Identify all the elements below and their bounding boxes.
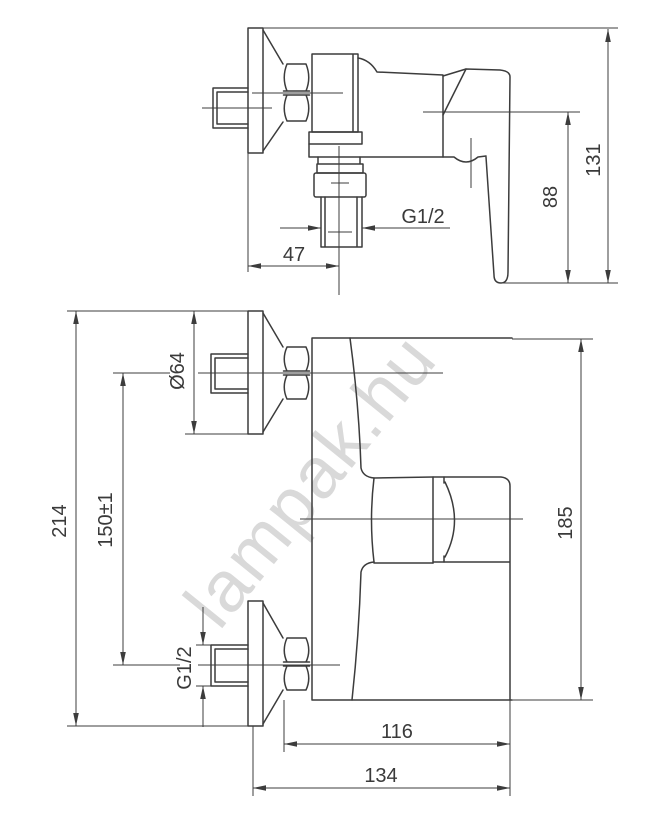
lower-escutcheon-cone bbox=[263, 603, 283, 724]
technical-drawing: lampak.hu bbox=[0, 0, 662, 823]
outlet-collar bbox=[317, 157, 363, 173]
dim-label-flange-diameter: Ø64 bbox=[167, 352, 189, 390]
handle-cap bbox=[433, 477, 510, 700]
lever-handle-outline bbox=[443, 69, 510, 283]
dim-label-connection-thread: G1/2 bbox=[174, 646, 196, 689]
watermark-text: lampak.hu bbox=[169, 319, 452, 642]
body-shoulder bbox=[358, 58, 443, 157]
dim-label-outlet-distance: 47 bbox=[283, 244, 305, 266]
lever-stem-edge bbox=[443, 69, 466, 115]
escutcheon-cone bbox=[263, 30, 283, 151]
drawing-canvas: lampak.hu bbox=[0, 0, 662, 823]
top-view: 131 88 G1/2 47 bbox=[202, 28, 618, 295]
body-underside bbox=[309, 144, 486, 162]
outlet-nut bbox=[314, 173, 366, 197]
dim-label-body-length: 185 bbox=[555, 506, 577, 539]
outlet-centerline bbox=[328, 146, 352, 295]
outlet-thread-pipe bbox=[321, 197, 362, 247]
lower-wall-plate bbox=[248, 601, 263, 726]
dim-label-overall-depth: 134 bbox=[364, 765, 397, 787]
dim-label-overall-height: 131 bbox=[583, 143, 605, 176]
dim-label-overall-length: 214 bbox=[49, 504, 71, 537]
lower-union-nut bbox=[284, 638, 310, 690]
front-view: Ø64 214 150±1 185 G1/2 116 134 bbox=[49, 311, 593, 796]
cartridge-collar bbox=[372, 477, 434, 563]
dim-label-outlet-thread: G1/2 bbox=[401, 206, 444, 228]
dim-label-handle-height: 88 bbox=[540, 186, 562, 208]
dim-label-connection-spacing: 150±1 bbox=[95, 492, 117, 547]
wall-plate-outline bbox=[248, 28, 263, 153]
dim-label-depth-to-handle: 116 bbox=[381, 721, 413, 743]
cap-flange bbox=[309, 132, 362, 144]
